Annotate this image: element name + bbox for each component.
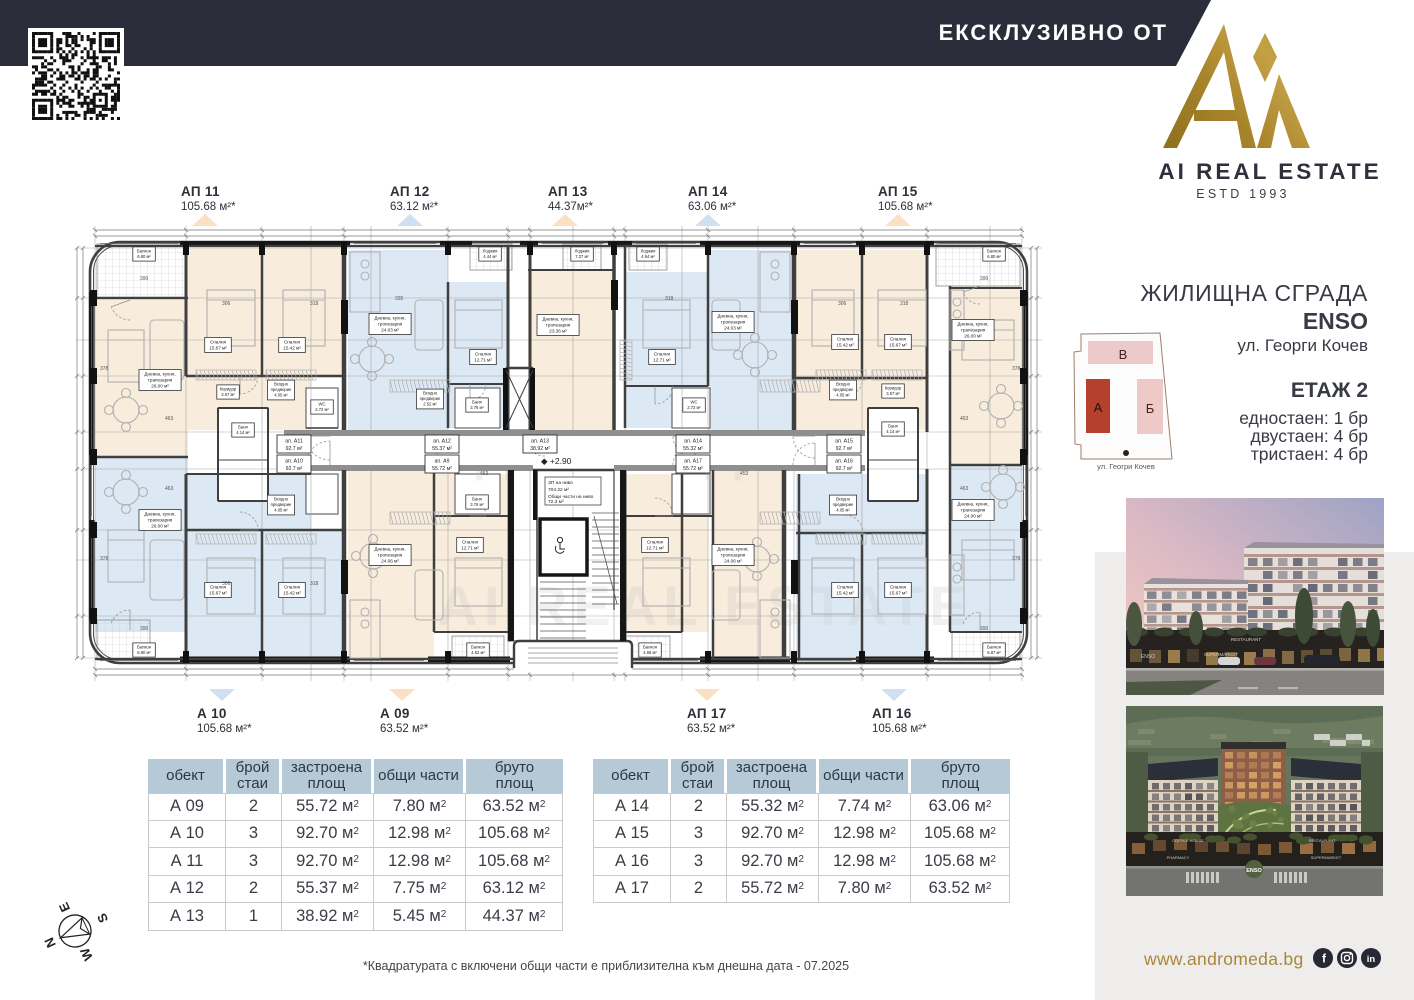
svg-text:ап. А15: ап. А15 [835, 439, 853, 445]
svg-text:24.00 м²: 24.00 м² [964, 513, 982, 518]
svg-text:Спалня: Спалня [284, 339, 301, 344]
svg-text:453: 453 [740, 471, 749, 477]
svg-text:55.72 м²: 55.72 м² [683, 466, 703, 472]
svg-text:тропезария: тропезария [721, 552, 746, 557]
svg-text:318: 318 [310, 301, 319, 307]
svg-text:92.7 м²: 92.7 м² [836, 446, 853, 452]
svg-text:Дневна, кухня,: Дневна, кухня, [144, 511, 175, 516]
svg-text:Входно: Входно [274, 382, 289, 387]
svg-text:12.71 м²: 12.71 м² [646, 545, 664, 550]
svg-text:463: 463 [960, 416, 969, 422]
svg-text:15.67 м²: 15.67 м² [889, 590, 907, 595]
svg-text:318: 318 [310, 581, 319, 587]
svg-text:Лоджия: Лоджия [483, 248, 498, 253]
svg-text:4.05 м²: 4.05 м² [836, 508, 850, 513]
svg-text:WC: WC [691, 399, 698, 404]
svg-text:15.67 м²: 15.67 м² [889, 342, 907, 347]
svg-text:4.64 м²: 4.64 м² [641, 254, 655, 259]
svg-text:55.32 м²: 55.32 м² [683, 446, 703, 452]
svg-text:Балкон: Балкон [137, 248, 152, 253]
svg-text:3.57 м²: 3.57 м² [886, 391, 900, 396]
svg-text:15.67 м²: 15.67 м² [209, 590, 227, 595]
svg-text:6.80 м²: 6.80 м² [137, 254, 151, 259]
svg-text:15.42 м²: 15.42 м² [283, 590, 301, 595]
svg-text:378: 378 [100, 556, 109, 562]
svg-text:Балкон: Балкон [987, 644, 1002, 649]
svg-text:24.06 м²: 24.06 м² [724, 558, 742, 563]
svg-text:Балкон: Балкон [987, 248, 1002, 253]
svg-text:3.76 м²: 3.76 м² [470, 405, 484, 410]
svg-text:Спалня: Спалня [284, 584, 301, 589]
svg-text:318: 318 [665, 296, 674, 302]
svg-text:4.52 м²: 4.52 м² [471, 650, 485, 655]
svg-text:12.71 м²: 12.71 м² [474, 357, 492, 362]
svg-text:Спалня: Спалня [837, 584, 854, 589]
svg-text:24.03 м²: 24.03 м² [724, 325, 742, 330]
svg-text:15.42 м²: 15.42 м² [836, 342, 854, 347]
svg-text:тропезария: тропезария [546, 322, 571, 327]
svg-text:Спалня: Спалня [890, 336, 907, 341]
svg-text:Входно: Входно [274, 497, 289, 502]
svg-text:378: 378 [100, 366, 109, 372]
svg-text:2.52 м²: 2.52 м² [423, 402, 437, 407]
svg-text:тропезария: тропезария [378, 552, 403, 557]
svg-text:ап. А12: ап. А12 [433, 439, 451, 445]
svg-text:55.37 м²: 55.37 м² [432, 446, 452, 452]
svg-text:453: 453 [480, 471, 489, 477]
svg-text:предверие: предверие [833, 502, 854, 507]
svg-text:Входно: Входно [836, 497, 851, 502]
svg-text:Баня: Баня [238, 424, 248, 429]
svg-text:ап. А10: ап. А10 [285, 459, 303, 465]
svg-text:ЗП на ниво: ЗП на ниво [548, 480, 573, 486]
svg-text:предверие: предверие [833, 387, 854, 392]
svg-text:4.66 м²: 4.66 м² [643, 650, 657, 655]
svg-text:Дневна, кухня,: Дневна, кухня, [717, 313, 748, 318]
svg-text:Спалня: Спалня [837, 336, 854, 341]
svg-text:Балкон: Балкон [471, 644, 486, 649]
svg-text:Спалня: Спалня [890, 584, 907, 589]
svg-text:2.72 м²: 2.72 м² [315, 407, 329, 412]
svg-text:15.42 м²: 15.42 м² [836, 590, 854, 595]
svg-text:24.06 м²: 24.06 м² [381, 558, 399, 563]
svg-text:38.92 м²: 38.92 м² [530, 446, 550, 452]
svg-text:Балкон: Балкон [137, 644, 152, 649]
svg-text:тропезария: тропезария [378, 321, 403, 326]
svg-text:Спалня: Спалня [210, 339, 227, 344]
svg-text:4.05 м²: 4.05 м² [274, 508, 288, 513]
svg-text:306: 306 [222, 581, 231, 587]
svg-text:7.27 м²: 7.27 м² [575, 254, 589, 259]
svg-text:Входно: Входно [836, 382, 851, 387]
svg-text:26.00 м²: 26.00 м² [151, 523, 169, 528]
svg-text:3.57 м²: 3.57 м² [221, 392, 235, 397]
svg-text:трапезария: трапезария [148, 517, 173, 522]
svg-text:704.22 м²: 704.22 м² [548, 487, 569, 493]
svg-text:306: 306 [222, 301, 231, 307]
svg-text:Дневна, кухня,: Дневна, кухня, [957, 501, 988, 506]
svg-text:15.42 м²: 15.42 м² [283, 345, 301, 350]
svg-text:ап. А14: ап. А14 [684, 439, 702, 445]
svg-text:3.76 м²: 3.76 м² [470, 502, 484, 507]
svg-text:предверие: предверие [420, 396, 441, 401]
svg-text:306: 306 [838, 301, 847, 307]
svg-text:6.87 м²: 6.87 м² [987, 650, 1001, 655]
svg-text:4.05 м²: 4.05 м² [836, 393, 850, 398]
svg-text:Входно: Входно [423, 391, 438, 396]
svg-text:26.00 м²: 26.00 м² [964, 333, 982, 338]
svg-text:12.71 м²: 12.71 м² [461, 545, 479, 550]
svg-text:6.80 м²: 6.80 м² [137, 650, 151, 655]
svg-text:Коридор: Коридор [885, 385, 902, 390]
svg-text:92.7 м²: 92.7 м² [286, 466, 303, 472]
svg-text:24.03 м²: 24.03 м² [381, 327, 399, 332]
svg-text:Дневна, кухня,: Дневна, кухня, [374, 546, 405, 551]
svg-text:6.80 м²: 6.80 м² [987, 254, 1001, 259]
svg-text:12.71 м²: 12.71 м² [653, 357, 671, 362]
svg-text:Баня: Баня [888, 423, 898, 428]
svg-text:Баня: Баня [472, 399, 482, 404]
svg-text:390: 390 [980, 626, 989, 632]
svg-text:◆ +2.90: ◆ +2.90 [541, 456, 572, 466]
svg-text:335: 335 [395, 296, 404, 302]
svg-text:318: 318 [900, 301, 909, 307]
svg-text:378: 378 [1012, 556, 1021, 562]
svg-text:26.00 м²: 26.00 м² [151, 383, 169, 388]
svg-text:Спалня: Спалня [462, 539, 479, 544]
svg-text:ап. А9: ап. А9 [435, 459, 450, 465]
svg-text:15.67 м²: 15.67 м² [209, 345, 227, 350]
svg-text:4.14 м²: 4.14 м² [236, 430, 250, 435]
svg-text:Дневна, кухня,: Дневна, кухня, [957, 321, 988, 326]
svg-text:Дневна, кухня,: Дневна, кухня, [144, 371, 175, 376]
svg-text:55.72 м²: 55.72 м² [432, 466, 452, 472]
svg-text:4.44 м²: 4.44 м² [483, 254, 497, 259]
svg-text:трапезария: трапезария [148, 377, 173, 382]
svg-text:WC: WC [319, 401, 326, 406]
svg-text:предверие: предверие [271, 387, 292, 392]
svg-text:92.7 м²: 92.7 м² [836, 466, 853, 472]
svg-text:ап. А17: ап. А17 [684, 459, 702, 465]
svg-text:Балкон: Балкон [643, 644, 658, 649]
svg-text:390: 390 [980, 276, 989, 282]
svg-text:предверие: предверие [271, 502, 292, 507]
svg-text:23.36 м²: 23.36 м² [549, 328, 567, 333]
svg-text:Лоджия: Лоджия [641, 248, 656, 253]
svg-text:Коридор: Коридор [220, 386, 237, 391]
svg-text:трапезария: трапезария [961, 507, 986, 512]
svg-text:ап. А16: ап. А16 [835, 459, 853, 465]
svg-text:463: 463 [165, 486, 174, 492]
svg-text:ап. А13: ап. А13 [531, 439, 549, 445]
svg-text:Спалня: Спалня [475, 351, 492, 356]
svg-text:Баня: Баня [472, 496, 482, 501]
svg-text:ап. А11: ап. А11 [285, 439, 303, 445]
svg-text:463: 463 [960, 486, 969, 492]
svg-text:4.05 м²: 4.05 м² [274, 393, 288, 398]
svg-text:4.14 м²: 4.14 м² [886, 429, 900, 434]
svg-text:92.7 м²: 92.7 м² [286, 446, 303, 452]
svg-text:390: 390 [140, 626, 149, 632]
svg-text:Дневна, кухня,: Дневна, кухня, [374, 315, 405, 320]
svg-text:72.3 м²: 72.3 м² [548, 499, 564, 505]
svg-text:390: 390 [140, 276, 149, 282]
svg-text:Спалня: Спалня [654, 351, 671, 356]
svg-text:2.72 м²: 2.72 м² [687, 405, 701, 410]
svg-text:Лоджия: Лоджия [575, 248, 590, 253]
svg-text:Дневна, кухня,: Дневна, кухня, [717, 546, 748, 551]
svg-text:трапезария: трапезария [961, 327, 986, 332]
svg-text:Спалня: Спалня [647, 539, 664, 544]
svg-text:Дневна, кухня,: Дневна, кухня, [542, 316, 573, 321]
svg-text:463: 463 [165, 416, 174, 422]
svg-text:тропезария: тропезария [721, 319, 746, 324]
svg-text:378: 378 [1012, 366, 1021, 372]
